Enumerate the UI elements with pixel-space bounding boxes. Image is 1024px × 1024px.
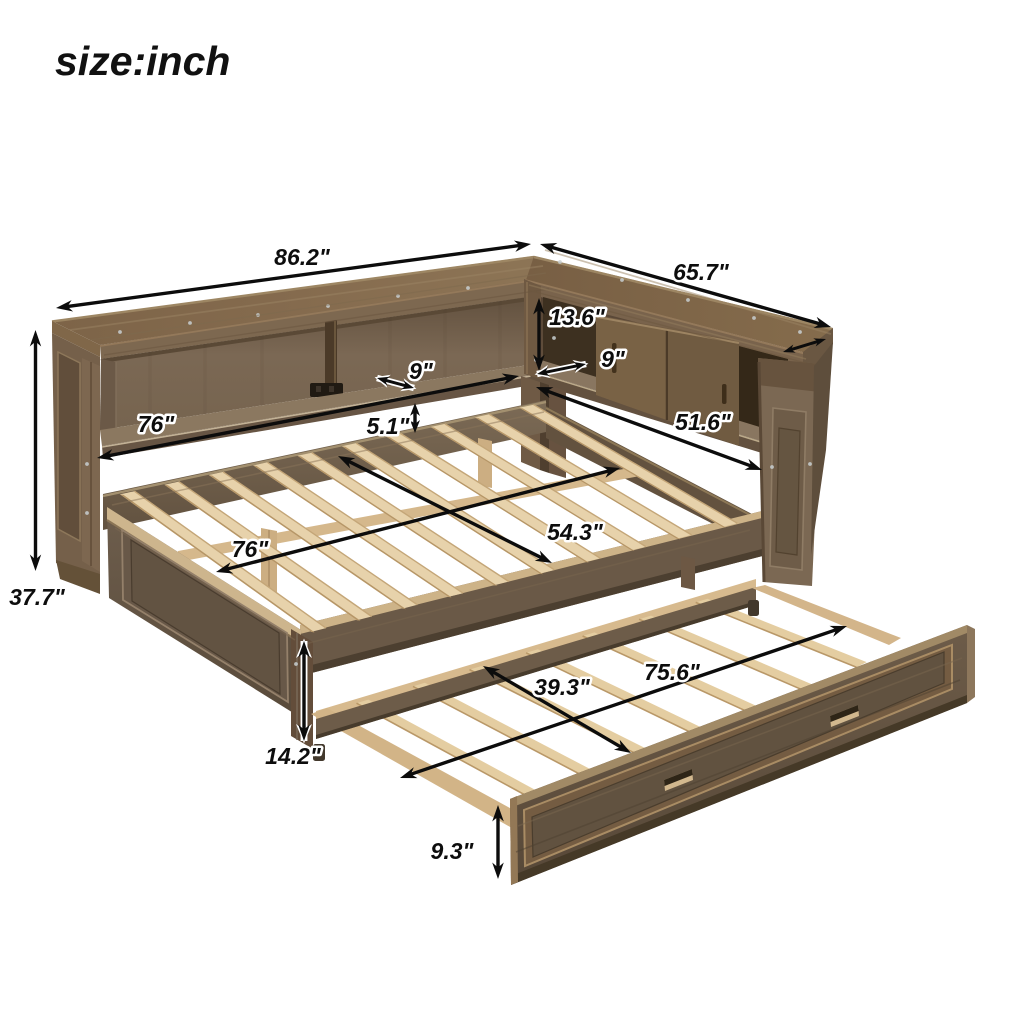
- svg-text:size:inch: size:inch: [55, 38, 230, 84]
- svg-text:9": 9": [601, 346, 626, 372]
- svg-text:14.2": 14.2": [265, 743, 322, 769]
- svg-text:65.7": 65.7": [673, 259, 730, 285]
- svg-text:39.3": 39.3": [534, 674, 591, 700]
- svg-text:9": 9": [409, 358, 434, 384]
- svg-text:51.6": 51.6": [675, 409, 732, 435]
- svg-text:54.3": 54.3": [547, 519, 604, 545]
- svg-text:76": 76": [138, 411, 176, 437]
- svg-text:86.2": 86.2": [274, 244, 331, 270]
- svg-text:13.6": 13.6": [549, 304, 606, 330]
- svg-text:5.1": 5.1": [367, 413, 411, 439]
- svg-text:37.7": 37.7": [9, 584, 66, 610]
- svg-text:9.3": 9.3": [431, 838, 475, 864]
- svg-text:75.6": 75.6": [644, 659, 701, 685]
- svg-text:76": 76": [232, 536, 270, 562]
